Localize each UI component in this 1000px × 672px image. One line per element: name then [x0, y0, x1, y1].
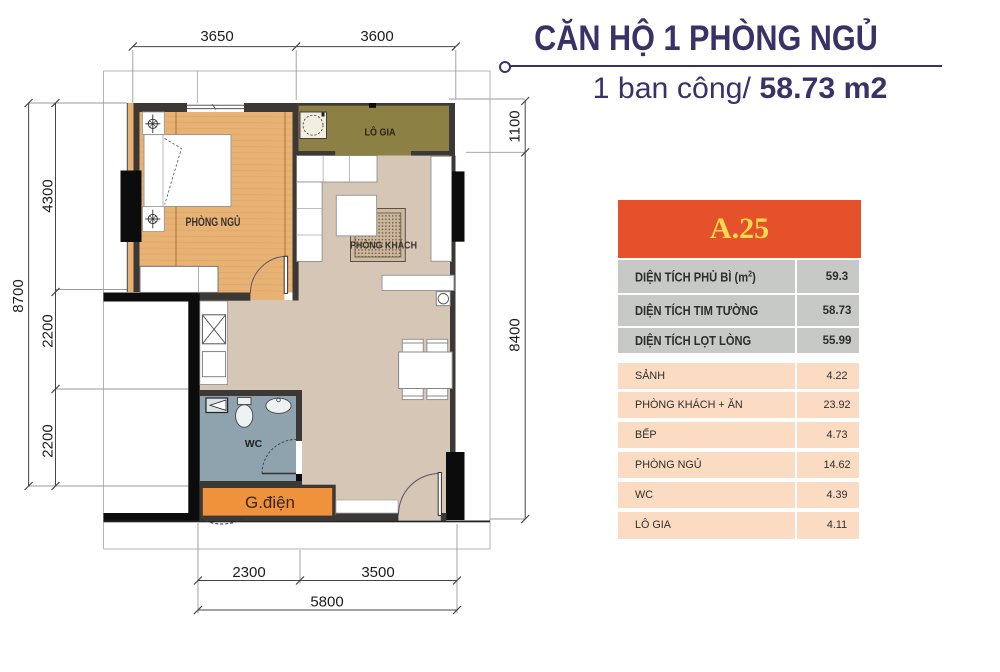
svg-text:2200: 2200 — [40, 314, 57, 347]
svg-text:3650: 3650 — [200, 28, 233, 45]
svg-text:2200: 2200 — [40, 424, 57, 457]
svg-text:LÔ GIA: LÔ GIA — [365, 126, 396, 139]
svg-text:5800: 5800 — [310, 594, 343, 611]
svg-text:8700: 8700 — [10, 279, 27, 312]
svg-text:3600: 3600 — [360, 28, 393, 45]
svg-text:PHÒNG NGỦ: PHÒNG NGỦ — [186, 216, 241, 229]
svg-text:G.điện: G.điện — [245, 494, 295, 512]
svg-text:1100: 1100 — [507, 110, 524, 142]
svg-text:2300: 2300 — [232, 564, 265, 581]
svg-text:8400: 8400 — [507, 318, 524, 351]
svg-text:4300: 4300 — [40, 179, 57, 212]
svg-text:PHÒNG KHÁCH: PHÒNG KHÁCH — [350, 239, 417, 252]
svg-text:3500: 3500 — [361, 564, 394, 581]
svg-text:WC: WC — [245, 438, 263, 450]
